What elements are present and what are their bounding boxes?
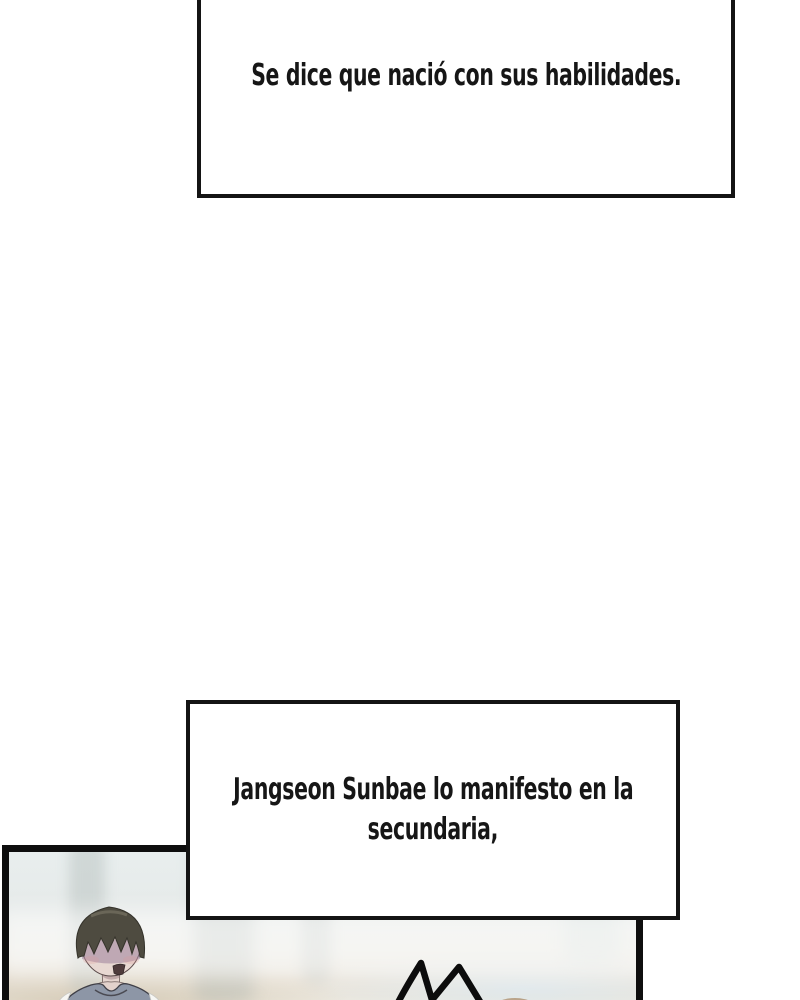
- shirt-strap-right: [149, 993, 161, 1000]
- cheek-blush: [123, 956, 139, 964]
- caption-text-2-line-1: Jangseon Sunbae lo manifesto en la: [233, 770, 633, 810]
- caption-box-1: Se dice que nació con sus habilidades.: [197, 0, 735, 198]
- caption-text-2-line-2: secundaria,: [368, 810, 498, 850]
- character-mouth: [113, 964, 125, 975]
- caption-text-1: Se dice que nació con sus habilidades.: [251, 56, 681, 96]
- comic-page: Se dice que nació con sus habilidades. J…: [0, 0, 800, 1000]
- character-boy: [57, 902, 167, 1000]
- spike-bubble-line: [387, 955, 492, 1000]
- cheek-blush: [83, 956, 99, 964]
- spike-path: [393, 963, 487, 1000]
- caption-box-2: Jangseon Sunbae lo manifesto en la secun…: [186, 700, 680, 920]
